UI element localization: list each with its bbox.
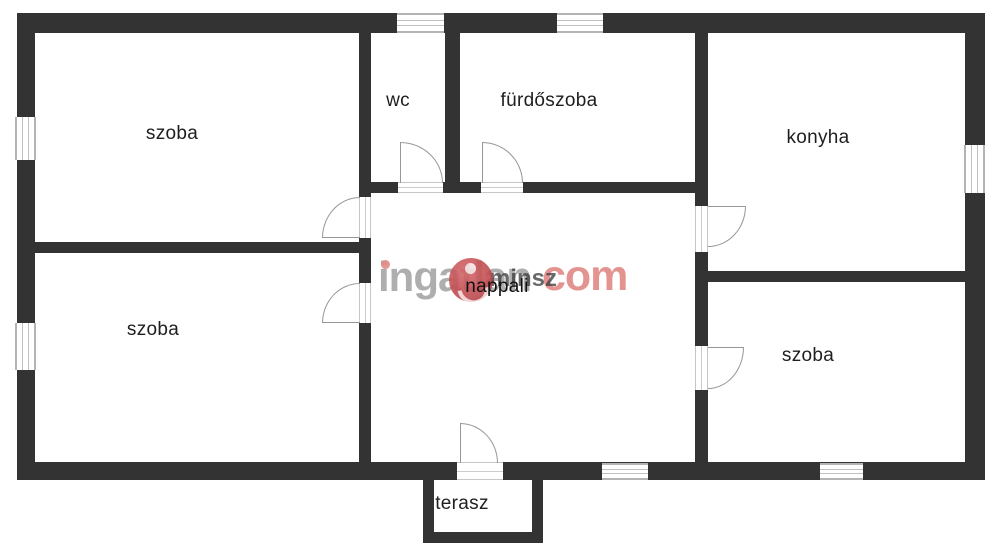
room-label-wc: wc <box>386 90 410 112</box>
wall-outer-right <box>965 13 985 480</box>
wall-wc-furdoszoba-vertical <box>445 33 460 193</box>
door-arc-szoba-br <box>708 347 744 389</box>
window-furdoszoba-top <box>557 13 603 33</box>
door-arc-szoba-bl <box>322 283 360 323</box>
door-sill-szoba-br <box>695 346 708 390</box>
room-label-szoba-tl: szoba <box>146 123 198 145</box>
door-sill-furdoszoba <box>481 182 523 193</box>
room-label-terasz: terasz <box>435 493 489 515</box>
floor-plan: ingatlan minsz com szoba wc fürdőszoba k… <box>0 0 1000 557</box>
wall-terasz-bottom <box>423 532 543 543</box>
window-szoba-bl-left <box>15 323 36 370</box>
room-label-konyha: konyha <box>786 127 849 149</box>
door-sill-szoba-bl <box>359 283 371 323</box>
wall-szoba-szoba-horizontal <box>17 242 371 253</box>
wall-outer-top <box>17 13 985 33</box>
window-szoba-br-bottom <box>820 463 863 480</box>
window-wc-top <box>397 13 444 33</box>
window-nappali-bottom <box>602 463 648 480</box>
room-label-szoba-br: szoba <box>782 345 834 367</box>
wall-konyha-bottom <box>695 271 965 282</box>
door-arc-terasz <box>460 423 498 463</box>
room-label-furdoszoba: fürdőszoba <box>500 90 597 112</box>
room-label-nappali: nappali <box>465 276 528 298</box>
door-arc-konyha <box>708 206 746 247</box>
door-sill-konyha <box>695 206 708 252</box>
door-sill-wc <box>398 182 443 193</box>
room-label-szoba-bl: szoba <box>127 319 179 341</box>
door-arc-furdoszoba <box>482 142 523 183</box>
door-arc-szoba-tl <box>322 197 360 238</box>
door-sill-terasz <box>457 462 503 480</box>
door-sill-szoba-tl <box>359 197 371 238</box>
window-konyha-right <box>964 145 985 193</box>
door-arc-wc <box>400 142 443 183</box>
watermark-i-dot-icon <box>381 260 390 269</box>
window-szoba-tl-left <box>15 117 36 160</box>
